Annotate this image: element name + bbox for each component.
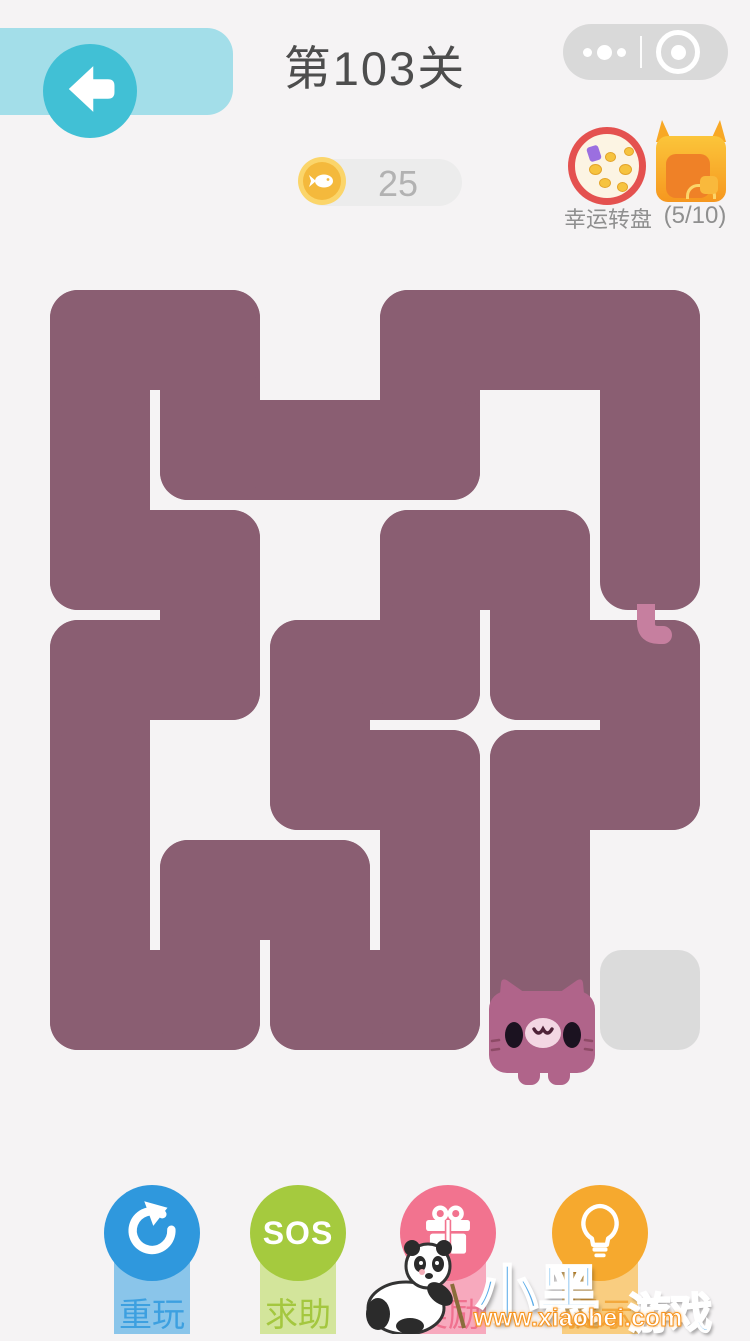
snake-segment xyxy=(270,950,480,1050)
snake-segment xyxy=(490,290,700,390)
snake-segment xyxy=(50,730,150,940)
snake-segment xyxy=(380,290,480,500)
wx-capsule xyxy=(563,24,728,80)
exit-target-cell xyxy=(600,950,700,1050)
sos-label: 求助 xyxy=(238,1288,358,1336)
snake-segment xyxy=(50,400,150,610)
snake-segment xyxy=(50,290,260,390)
snake-segment xyxy=(270,620,370,830)
capsule-divider xyxy=(640,36,642,68)
snake-segment xyxy=(50,620,150,830)
fish-coin-icon xyxy=(298,157,346,205)
more-dots-icon[interactable] xyxy=(583,45,626,60)
replay-button[interactable]: 重玩 xyxy=(104,1185,200,1334)
reward-chest-button[interactable] xyxy=(652,126,730,206)
wheel-prize-icon xyxy=(586,145,602,163)
snake-segment xyxy=(490,730,700,830)
coin-count: 25 xyxy=(348,163,448,205)
snake-tail-icon xyxy=(633,604,685,650)
snake-segment xyxy=(50,290,150,500)
chest-progress: (5/10) xyxy=(650,202,740,230)
snake-segment xyxy=(160,840,260,1050)
snake-segment xyxy=(600,620,700,830)
watermark-url: www.xiaohei.com xyxy=(428,1304,728,1333)
snake-segment xyxy=(270,620,480,720)
snake-segment xyxy=(490,730,590,940)
snake-segment xyxy=(160,840,370,940)
snake-segment xyxy=(160,510,260,720)
cat-chest-icon xyxy=(656,136,726,202)
coin-counter: 25 xyxy=(300,159,462,206)
target-circle-icon[interactable] xyxy=(656,30,700,74)
snake-segment xyxy=(50,840,150,1050)
sos-button[interactable]: SOS 求助 xyxy=(250,1185,346,1334)
snake-segment xyxy=(160,400,370,500)
snake-segment xyxy=(380,290,590,390)
snake-segment xyxy=(380,510,590,610)
snake-segment xyxy=(50,510,260,610)
snake-segment xyxy=(490,620,700,720)
snake-segment xyxy=(270,840,370,1050)
snake-segment xyxy=(380,840,480,1050)
cat-head[interactable] xyxy=(484,975,600,1089)
lucky-wheel-button[interactable] xyxy=(568,127,646,205)
refresh-icon xyxy=(121,1200,183,1267)
snake-segment xyxy=(50,950,260,1050)
snake-segment xyxy=(490,510,590,720)
snake-segment xyxy=(160,290,260,500)
snake-segment xyxy=(50,620,260,720)
snake-segment xyxy=(600,400,700,610)
snake-segment xyxy=(380,510,480,720)
snake-segment xyxy=(270,730,480,830)
replay-label: 重玩 xyxy=(92,1288,212,1336)
snake-segment xyxy=(380,730,480,940)
snake-segment xyxy=(270,400,480,500)
snake-segment xyxy=(600,290,700,500)
lucky-wheel-label: 幸运转盘 xyxy=(556,202,660,234)
sos-icon: SOS xyxy=(263,1215,334,1252)
